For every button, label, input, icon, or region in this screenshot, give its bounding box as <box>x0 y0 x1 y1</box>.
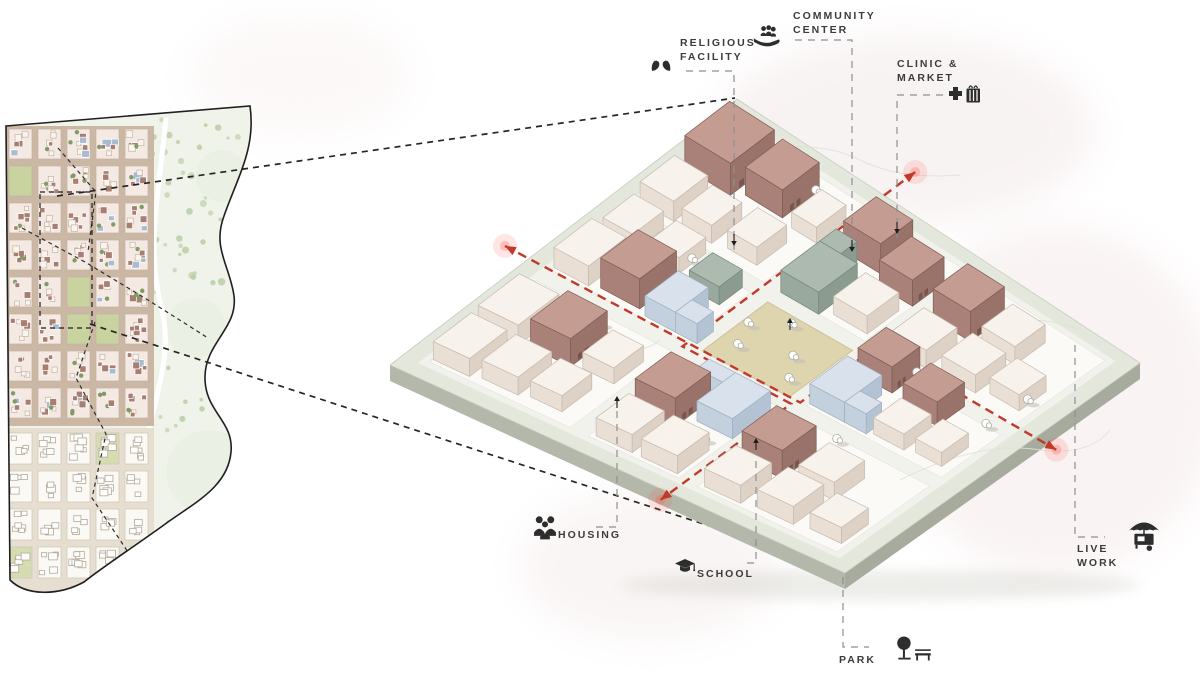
site-map <box>4 106 258 598</box>
diagram-canvas <box>0 0 1200 675</box>
masterplan-diagram: RELIGIOUS FACILITY COMMUNITY CENTER <box>0 0 1200 675</box>
